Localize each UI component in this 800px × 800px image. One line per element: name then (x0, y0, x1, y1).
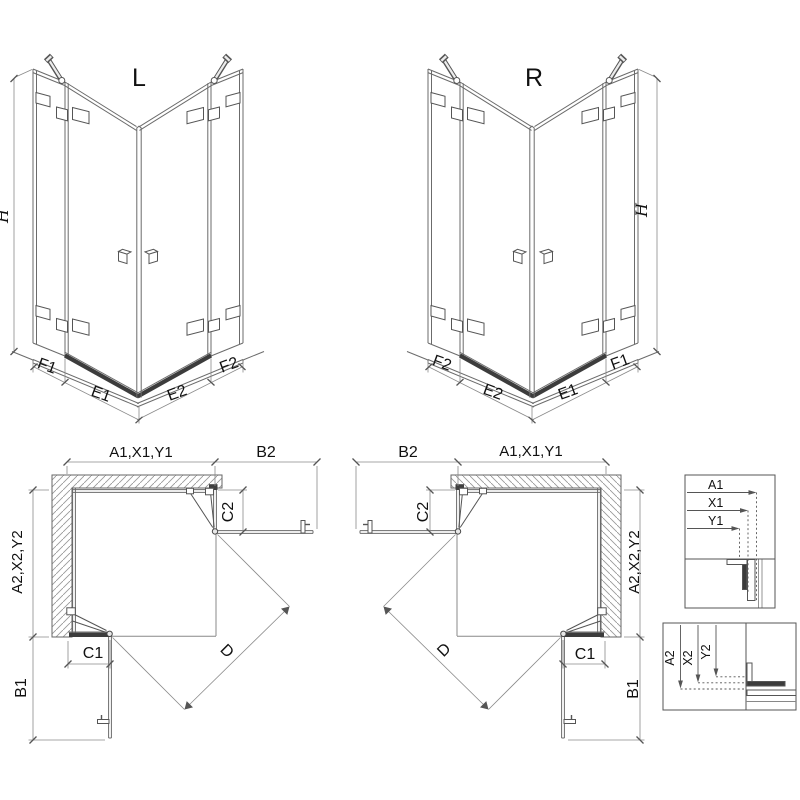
iso-left-f2-label: F2 (217, 354, 240, 376)
detail-box-side-profile: A2 X2 Y2 (663, 623, 796, 710)
plan-left-diagonal-label: D (217, 641, 237, 661)
detail-box-top-profile: A1 X1 Y1 (685, 475, 775, 608)
iso-left-height-label: H (0, 208, 12, 224)
plan-right-diagonal-label: D (434, 640, 454, 660)
plan-right-stub-top-label: C2 (415, 502, 432, 523)
plan-left-top-width-label: A1,X1,Y1 (109, 444, 172, 461)
diagram-canvas: L H F1 E1 E2 F2 R H F2 E2 E1 F1 A1,X1,Y1… (0, 0, 800, 800)
iso-right-e2-label: E2 (481, 381, 505, 404)
plan-view-right: A1,X1,Y1 B2 C2 A2,X2,Y2 C1 B1 D (353, 443, 645, 744)
iso-left-title: L (132, 64, 146, 92)
detail-y1-label: Y1 (708, 514, 723, 528)
detail-a1-label: A1 (708, 478, 723, 492)
plan-right-door-bottom-label: B1 (625, 679, 642, 699)
plan-left-stub-bottom-label: C1 (83, 645, 104, 662)
shower-enclosure-technical-drawing: L H F1 E1 E2 F2 R H F2 E2 E1 F1 A1,X1,Y1… (0, 0, 800, 800)
iso-view-right: R H F2 E2 E1 F1 (407, 56, 661, 424)
iso-right-title: R (525, 64, 543, 92)
iso-view-left: L H F1 E1 E2 F2 (0, 56, 264, 424)
iso-left-e2-label: E2 (165, 382, 189, 405)
iso-left-f1-label: F1 (35, 355, 58, 377)
plan-right-door-top-label: B2 (398, 444, 418, 461)
plan-right-top-width-label: A1,X1,Y1 (499, 443, 562, 460)
iso-left-e1-label: E1 (89, 383, 113, 406)
plan-right-side-width-label: A2,X2,Y2 (626, 530, 643, 593)
detail-a2-label: A2 (663, 650, 677, 665)
plan-left-side-width-label: A2,X2,Y2 (9, 530, 26, 593)
plan-right-stub-bottom-label: C1 (575, 646, 596, 663)
plan-left-stub-top-label: C2 (220, 502, 237, 523)
detail-y2-label: Y2 (699, 644, 713, 659)
plan-left-door-top-label: B2 (256, 444, 276, 461)
detail-x1-label: X1 (708, 496, 723, 510)
iso-right-f2-label: F2 (430, 352, 453, 374)
iso-right-height-label: H (632, 202, 651, 218)
plan-view-left: A1,X1,Y1 B2 C2 A2,X2,Y2 C1 B1 D (9, 444, 321, 744)
detail-x2-label: X2 (681, 650, 695, 665)
plan-left-door-bottom-label: B1 (13, 678, 30, 698)
